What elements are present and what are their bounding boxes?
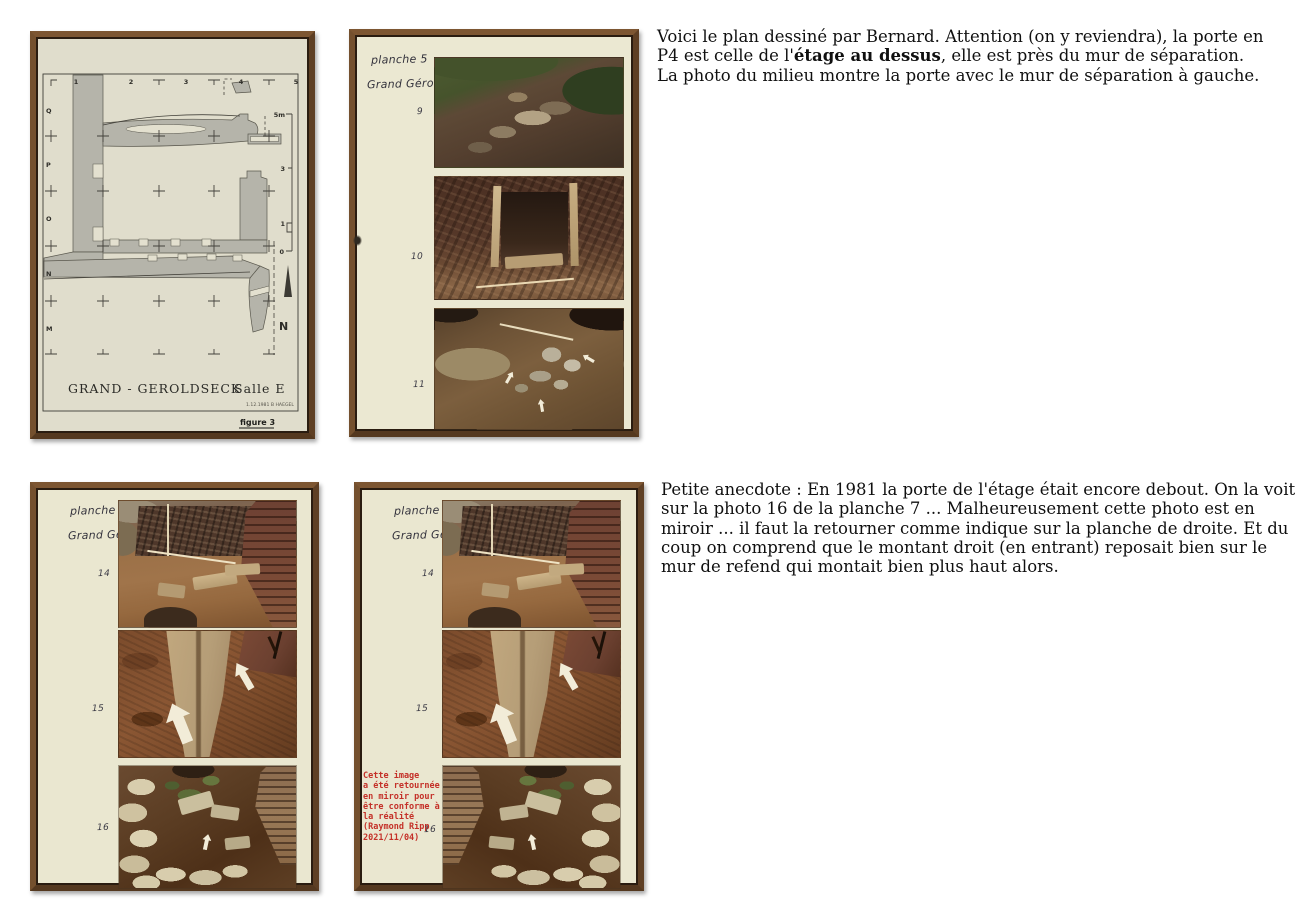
grid-letter: M [46, 325, 52, 333]
brick-wall [255, 765, 297, 865]
stone-slab [225, 835, 251, 850]
photo-9 [434, 57, 624, 168]
grid-letter: P [46, 161, 51, 169]
grid-number: 4 [239, 78, 244, 86]
plan-drawing: 1 2 3 4 5 Q P O N M 5m 3 1 0 N GRAND - G… [36, 37, 309, 433]
survey-pole [491, 504, 493, 557]
commentary-bottom: Petite anecdote : En 1981 la porte de l'… [661, 480, 1297, 576]
mirror-correction-note: Cette image a été retournée en miroir po… [363, 771, 455, 843]
measuring-rod [476, 278, 574, 289]
commentary-top: Voici le plan dessiné par Bernard. Atten… [657, 27, 1275, 85]
commentary-top-line2: La photo du milieu montre la porte avec … [657, 66, 1275, 85]
stone-slab [178, 791, 215, 816]
grid-letter: N [46, 270, 51, 278]
scale-label: 1 [280, 220, 285, 228]
photo-11 [434, 308, 624, 430]
photo-number: 10 [411, 252, 423, 262]
photo-15 [118, 630, 297, 758]
lintel-slab [158, 630, 239, 758]
grid-letter: Q [46, 107, 52, 115]
grid-number: 1 [74, 78, 79, 86]
grid-number: 3 [184, 78, 189, 86]
commentary-top-bold: étage au dessus [794, 46, 941, 65]
rubble-wall [135, 506, 252, 556]
photo-number: 14 [98, 569, 110, 579]
plan-title: GRAND - GEROLDSECK [68, 381, 241, 396]
commentary-bottom-text: Petite anecdote : En 1981 la porte de l'… [661, 480, 1295, 576]
photo-number: 11 [413, 380, 425, 390]
photo-number: 15 [92, 704, 104, 714]
door-sill-stone [504, 253, 563, 269]
note-line: (Raymond Ripp [363, 822, 455, 832]
figure3-plate: 1 2 3 4 5 Q P O N M 5m 3 1 0 N GRAND - G… [30, 31, 315, 439]
photo-number: 16 [424, 825, 436, 835]
planche7-left-plate: planche 7 Grand Géroldseck 14 15 16 [30, 482, 319, 891]
photo-number: 16 [97, 823, 109, 833]
annotation-arrow-icon [504, 371, 517, 386]
grid-letter: O [46, 215, 52, 223]
stone-slab [488, 835, 514, 850]
lintel-slab [482, 630, 563, 758]
plan-credit: 1.12.1981 B HAEGEL [246, 402, 294, 408]
stone-slab [499, 804, 529, 821]
planche5-plate: planche 5 Grand Géroldseck 9 10 11 [349, 29, 639, 437]
plan-room-label: Salle E [234, 381, 286, 396]
survey-pole [167, 504, 169, 557]
stone-wall [489, 859, 588, 889]
paper-smudge [353, 235, 362, 246]
lintel-stone [157, 583, 185, 599]
door-post [570, 183, 579, 266]
excavation-pit [468, 607, 521, 628]
photo-16 [118, 765, 297, 889]
scale-label: 5m [274, 111, 286, 119]
note-line: a été retournée [363, 781, 455, 791]
north-label: N [279, 320, 288, 333]
photo-16-content [119, 766, 296, 888]
photo-number: 14 [422, 569, 434, 579]
planche-label: planche 5 [371, 52, 428, 66]
plan-walls [44, 75, 281, 332]
photo-16-mirrored [442, 765, 621, 889]
scale-label: 3 [280, 165, 285, 173]
lintel-stone [481, 583, 509, 599]
grid-number: 2 [129, 78, 134, 86]
stone-wall [151, 859, 250, 889]
annotation-arrow-icon [582, 352, 597, 365]
excavation-pit [144, 607, 197, 628]
stone-slab [525, 791, 562, 816]
note-line: 2021/11/04) [363, 833, 455, 843]
planche7-right-plate: planche 7 Grand Géroldseck Cette image [354, 482, 644, 891]
note-line: Cette image [363, 771, 455, 781]
annotation-arrow-icon [537, 398, 546, 412]
photo-14 [442, 500, 621, 628]
rubble-wall [459, 506, 576, 556]
photo-15 [442, 630, 621, 758]
lintel-stone [225, 563, 261, 576]
note-line: la réalité [363, 812, 455, 822]
photo-14 [118, 500, 297, 628]
photo-10 [434, 176, 624, 300]
lintel-stone [549, 563, 585, 576]
photo-16-content [443, 766, 620, 888]
annotation-arrow-icon [201, 834, 213, 852]
figure-caption: figure 3 [240, 418, 275, 427]
scale-label: 0 [279, 248, 284, 256]
plan-scale-bar [286, 114, 292, 251]
annotation-arrow-icon [526, 834, 538, 852]
photo-number: 15 [416, 704, 428, 714]
note-line: être conforme à [363, 802, 455, 812]
north-arrow-icon [284, 265, 292, 297]
grid-number: 5 [294, 78, 299, 86]
commentary-top-tail: , elle est près du mur de séparation. [941, 46, 1244, 65]
photo-number: 9 [417, 107, 423, 117]
measuring-rod [500, 323, 574, 341]
stone-slab [210, 804, 240, 821]
note-line: en miroir pour [363, 792, 455, 802]
